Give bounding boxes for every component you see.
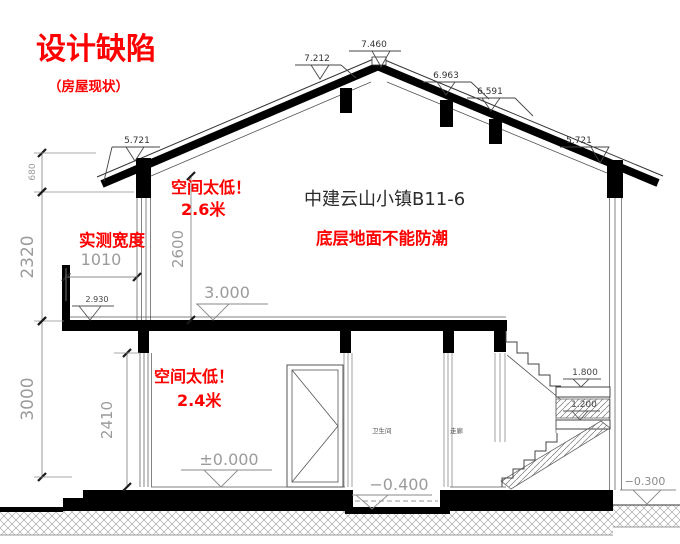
level-value-ridge-7460: 7.460 [361, 40, 387, 50]
floor-beam [340, 331, 351, 353]
drawing-canvas: 7.2127.4606.9636.5915.7215.7212.9303.000… [0, 0, 680, 544]
stair-upper-flight [506, 331, 561, 386]
dim-value-left-680: 680 [28, 163, 38, 180]
level-value-stair-landing-1200: 1.200 [571, 400, 597, 410]
level-value-eave-right-5721: 5.721 [566, 136, 592, 146]
building-title: 中建云山小镇B11-6 [304, 189, 465, 210]
level-value-floor1-zero: ±0.000 [199, 450, 258, 469]
note-low-space-lower-line2: 2.4米 [177, 391, 222, 410]
level-marker-roof-left-7212: 7.212 [295, 54, 356, 79]
stair-soffit [507, 355, 560, 399]
roof [97, 57, 663, 184]
dim-value-balcony-1010: 1010 [81, 250, 122, 269]
dim-left-2320: 2320 [18, 188, 64, 325]
level-value-floor2-3000: 3.000 [204, 283, 250, 302]
note-low-space-upper-line1: 空间太低！ [171, 178, 251, 197]
level-value-roof-right-6963: 6.963 [433, 71, 459, 81]
ground-floor-slab [0, 487, 613, 514]
ceiling-line-left [151, 82, 371, 176]
stair-cut-flight-lower [501, 421, 610, 489]
level-value-stair-landing-1800: 1.800 [572, 368, 598, 378]
level-marker-floor2-3000: 3.000 [196, 283, 268, 320]
dim-value-left-3000: 3000 [18, 377, 38, 420]
roof-post [489, 119, 502, 144]
right-wall-eave-column [607, 160, 623, 198]
level-marker-ground-right-minus-0300: −0.300 [620, 475, 676, 504]
left-wall-beam [138, 331, 149, 353]
dim-lower-room-2410: 2410 [98, 349, 140, 491]
dim-value-lower-room-2410: 2410 [98, 401, 116, 439]
level-marker-pit-minus-0400: −0.400 [352, 475, 432, 509]
roof-post [440, 100, 453, 127]
floor-beam [443, 331, 454, 353]
level-value-eave-left-5721: 5.721 [124, 136, 150, 146]
stair-landing-1800 [556, 387, 610, 397]
level-value-balcony-2930: 2.930 [86, 295, 109, 304]
note-measured-width: 实测宽度 [79, 230, 146, 250]
level-value-ground-right-minus-0300: −0.300 [625, 475, 666, 488]
note-low-space-lower-line1: 空间太低！ [154, 367, 234, 386]
roof-top-line-right [380, 58, 663, 176]
second-floor-slab [62, 320, 507, 331]
dim-balcony-1010: 1010 [62, 250, 141, 301]
right-wall [607, 160, 623, 490]
level-value-roof-right-6591: 6.591 [477, 87, 503, 97]
level-value-pit-minus-0400: −0.400 [369, 475, 428, 494]
room-label-bathroom: 卫生间 [372, 426, 392, 435]
room-label-corridor: 走廊 [450, 426, 464, 435]
level-marker-stair-landing-1800: 1.800 [563, 368, 601, 387]
interior-door [287, 365, 343, 487]
staircase [501, 331, 610, 489]
dim-value-left-2320: 2320 [18, 235, 38, 278]
floor-beam [494, 331, 506, 352]
level-marker-floor1-zero: ±0.000 [181, 450, 272, 487]
roof-post [340, 88, 352, 113]
note-floor-dampproof: 底层地面不能防潮 [316, 228, 448, 248]
second-floor [62, 265, 507, 353]
note-low-space-upper-line2: 2.6米 [181, 200, 226, 219]
section-drawing: 7.2127.4606.9636.5915.7215.7212.9303.000… [0, 0, 680, 544]
level-value-roof-left-7212: 7.212 [304, 54, 330, 64]
dim-left-3000: 3000 [18, 317, 72, 481]
dim-value-upper-room-2600: 2600 [169, 230, 187, 268]
main-title: 设计缺陷 [36, 32, 156, 67]
left-wall-eave-column [136, 158, 151, 198]
sub-title: （房屋现状） [48, 78, 129, 95]
interior-walls [344, 353, 505, 487]
level-marker-balcony-2930: 2.930 [72, 295, 114, 320]
